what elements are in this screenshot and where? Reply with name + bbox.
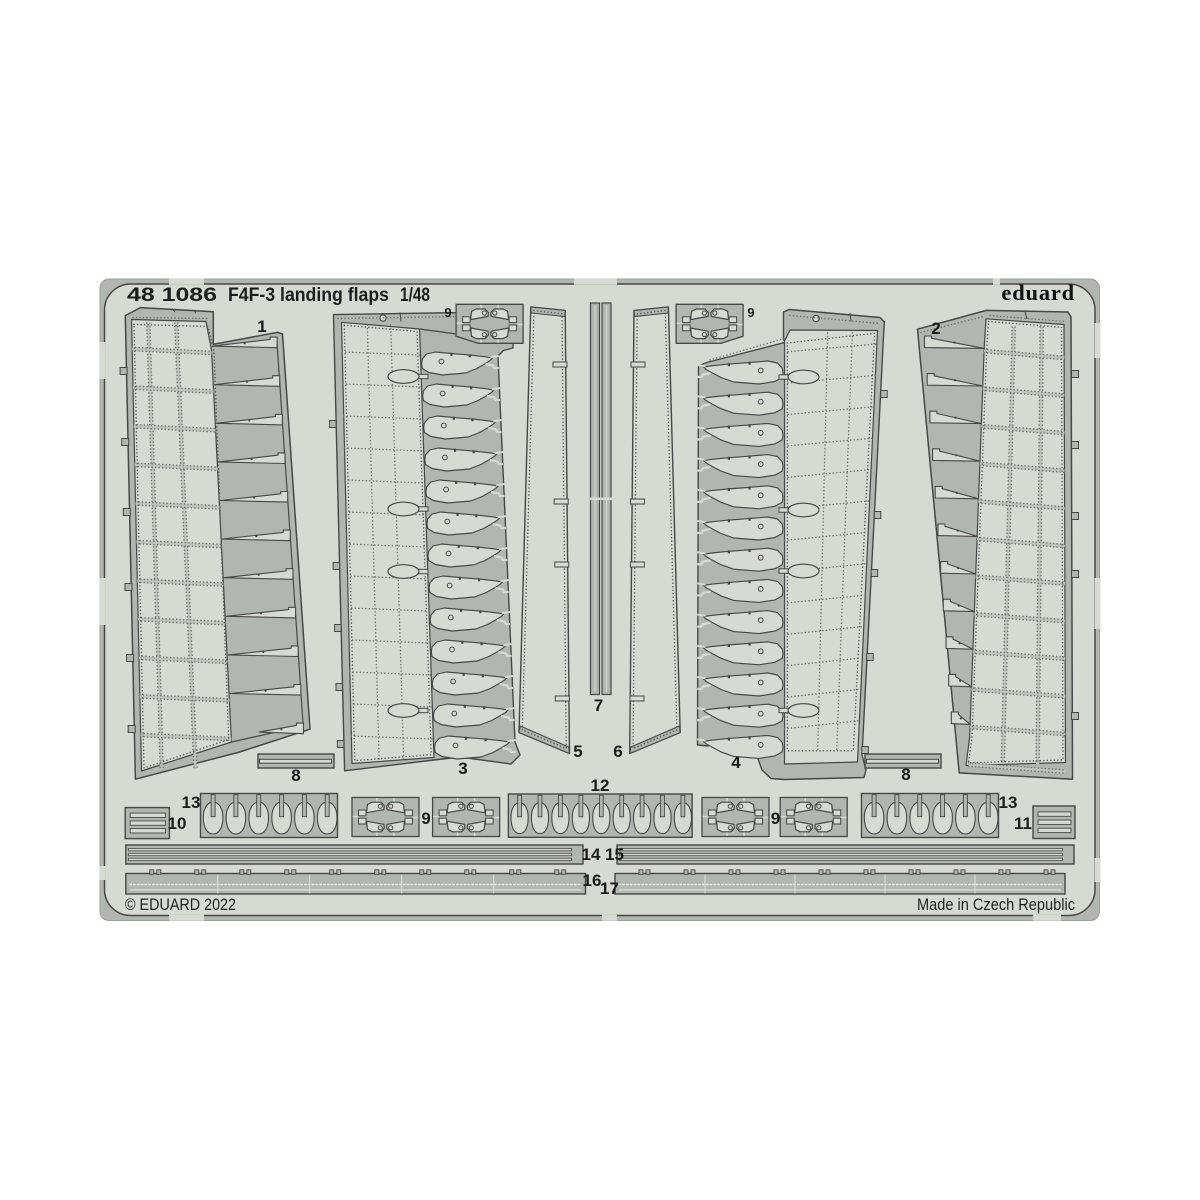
svg-text:8: 8 [901, 765, 910, 784]
svg-text:9: 9 [444, 305, 451, 320]
svg-text:12: 12 [591, 776, 610, 795]
svg-text:9: 9 [747, 305, 754, 320]
svg-text:13: 13 [182, 793, 201, 812]
svg-text:6: 6 [613, 742, 622, 761]
svg-text:7: 7 [594, 696, 603, 715]
svg-text:eduard: eduard [1001, 280, 1075, 305]
svg-text:15: 15 [605, 845, 624, 864]
svg-text:1: 1 [257, 317, 266, 336]
svg-text:13: 13 [999, 793, 1018, 812]
svg-text:9: 9 [421, 809, 430, 828]
svg-text:Made in Czech Republic: Made in Czech Republic [917, 896, 1075, 914]
svg-text:17: 17 [600, 879, 619, 898]
svg-text:9: 9 [771, 809, 780, 828]
svg-text:4: 4 [731, 753, 741, 772]
svg-text:48 1086F4F-3 landing flaps1/48: 48 1086F4F-3 landing flaps1/48 [127, 284, 430, 306]
svg-text:14: 14 [582, 845, 601, 864]
svg-text:16: 16 [583, 871, 602, 890]
svg-text:5: 5 [573, 742, 582, 761]
svg-text:2: 2 [931, 319, 940, 338]
svg-text:3: 3 [458, 759, 467, 778]
svg-text:8: 8 [291, 766, 300, 785]
svg-text:11: 11 [1014, 814, 1032, 833]
svg-text:© EDUARD 2022: © EDUARD 2022 [125, 896, 236, 914]
svg-text:10: 10 [168, 814, 187, 833]
